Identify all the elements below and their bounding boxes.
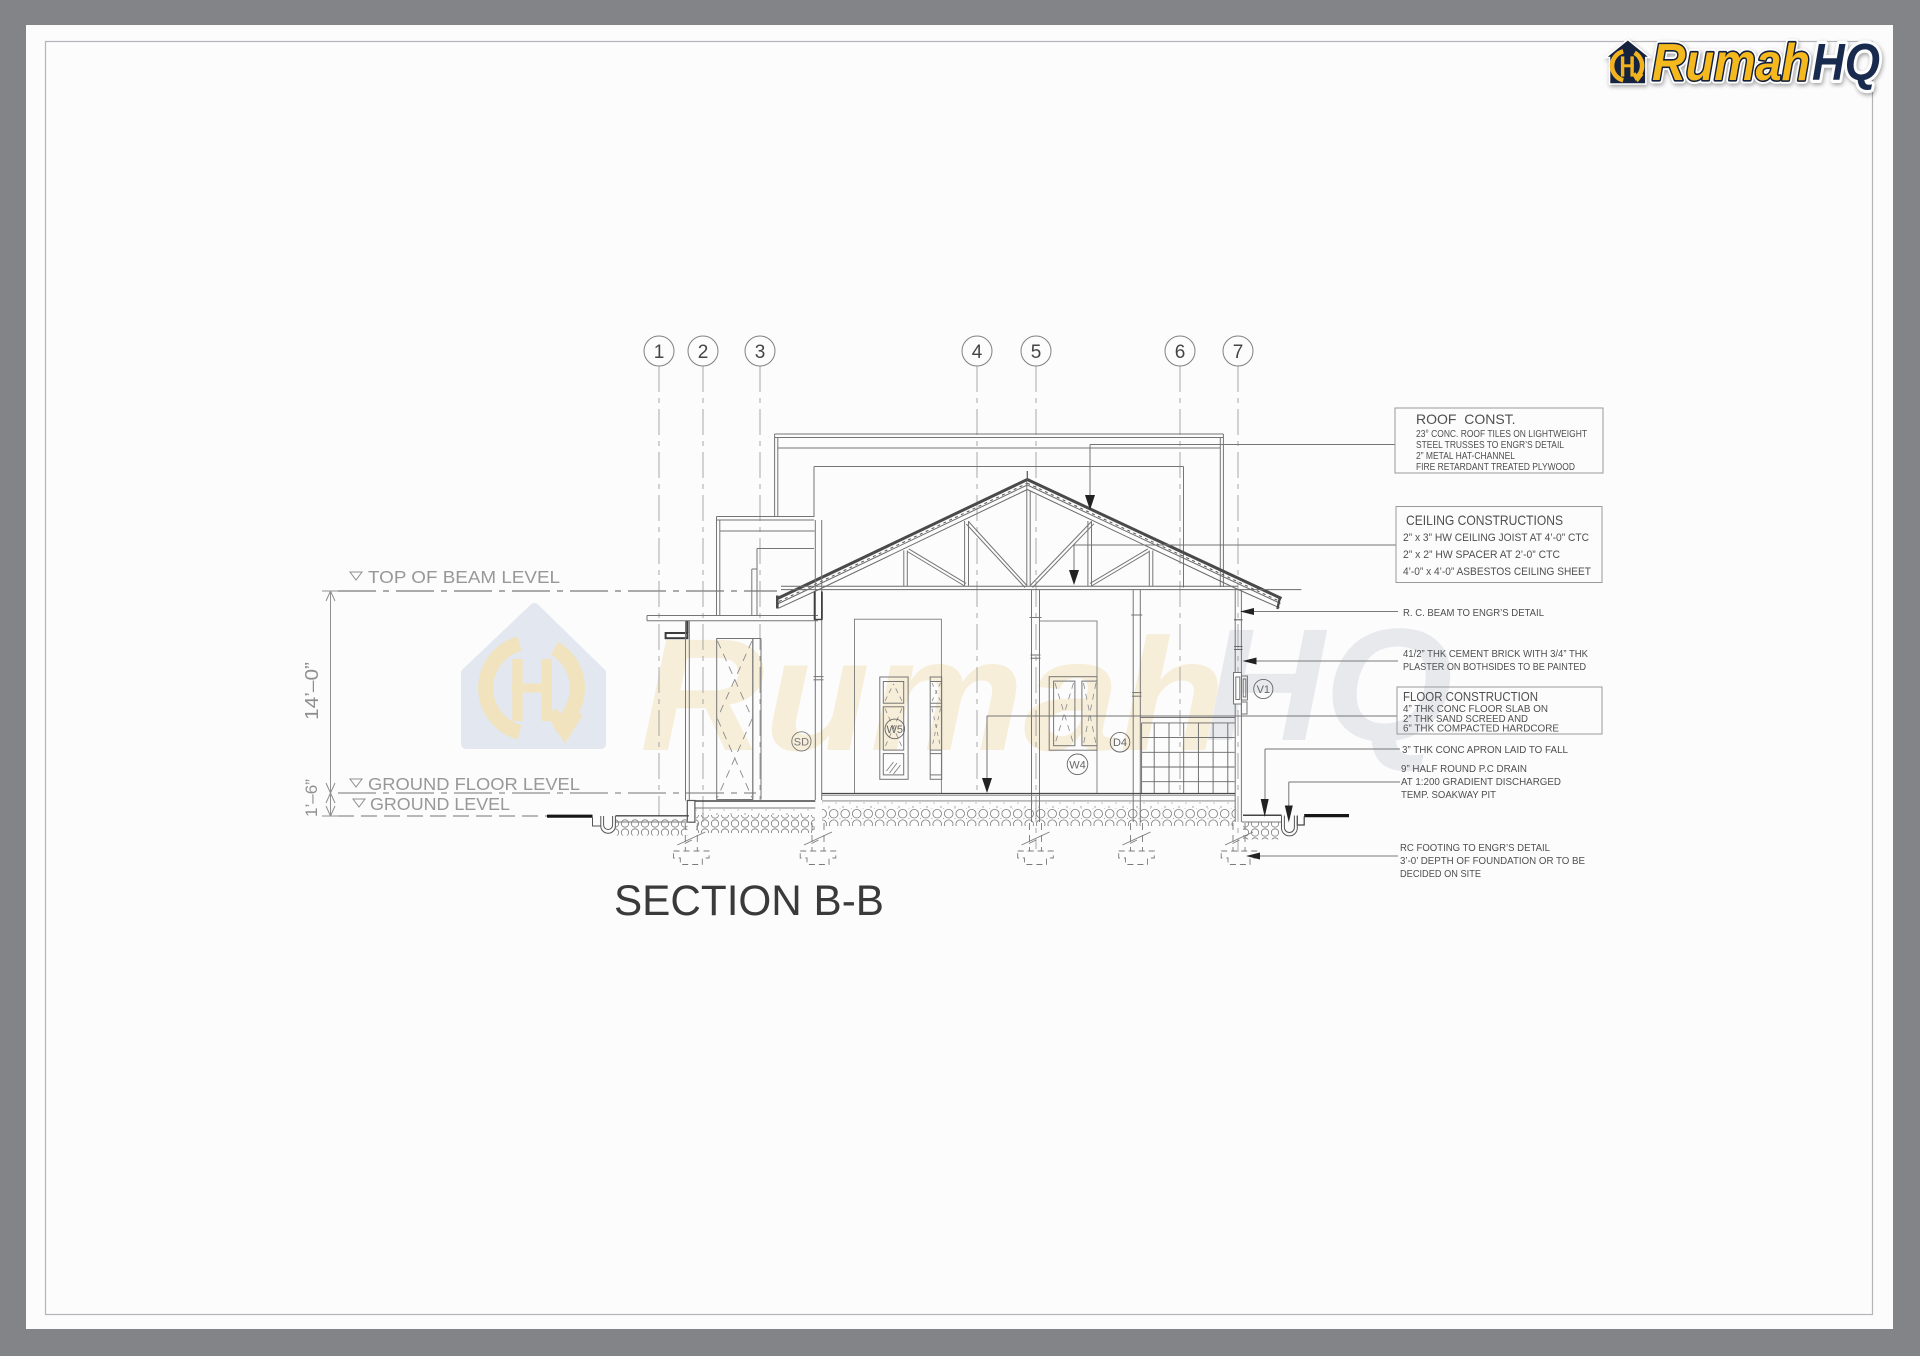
svg-text:3” THK CONC APRON LAID TO FALL: 3” THK CONC APRON LAID TO FALL — [1402, 744, 1568, 756]
svg-text:1: 1 — [654, 342, 665, 363]
svg-text:4: 4 — [972, 342, 983, 363]
svg-text:PLASTER ON BOTHSIDES TO BE PAI: PLASTER ON BOTHSIDES TO BE PAINTED — [1403, 661, 1586, 673]
svg-text:FLOOR CONSTRUCTION: FLOOR CONSTRUCTION — [1403, 690, 1538, 704]
svg-text:2” METAL HAT-CHANNEL: 2” METAL HAT-CHANNEL — [1416, 451, 1516, 462]
svg-text:ROOF CONST.: ROOF CONST. — [1416, 411, 1516, 427]
svg-text:SECTION B-B: SECTION B-B — [614, 877, 884, 925]
svg-text:AT 1:200 GRADIENT DISCHARGED: AT 1:200 GRADIENT DISCHARGED — [1401, 776, 1561, 788]
svg-text:14’–0”: 14’–0” — [302, 662, 322, 720]
svg-text:41/2” THK CEMENT BRICK WITH 3/: 41/2” THK CEMENT BRICK WITH 3/4” THK — [1403, 648, 1588, 660]
svg-text:W5: W5 — [887, 724, 904, 736]
svg-text:23° CONC. ROOF TILES ON LIGHTW: 23° CONC. ROOF TILES ON LIGHTWEIGHT — [1416, 429, 1587, 440]
svg-text:TEMP. SOAKWAY PIT: TEMP. SOAKWAY PIT — [1401, 789, 1497, 801]
svg-text:1’–6”: 1’–6” — [302, 779, 321, 817]
svg-text:7: 7 — [1233, 342, 1244, 363]
svg-text:CEILING CONSTRUCTIONS: CEILING CONSTRUCTIONS — [1406, 512, 1563, 528]
svg-text:3: 3 — [755, 342, 766, 363]
svg-text:R. C. BEAM TO ENGR’S DETAIL: R. C. BEAM TO ENGR’S DETAIL — [1403, 607, 1544, 619]
svg-text:2” x 2” HW SPACER AT 2’-0” CT: 2” x 2” HW SPACER AT 2’-0” CTC — [1403, 549, 1560, 561]
svg-text:GROUND FLOOR LEVEL: GROUND FLOOR LEVEL — [368, 774, 580, 794]
svg-text:W4: W4 — [1069, 760, 1086, 772]
svg-text:STEEL TRUSSES TO ENGR’S DETAIL: STEEL TRUSSES TO ENGR’S DETAIL — [1416, 440, 1565, 451]
svg-text:5: 5 — [1031, 342, 1042, 363]
svg-text:4’-0” x 4’-0” ASBESTOS CEILING: 4’-0” x 4’-0” ASBESTOS CEILING SHEET — [1403, 566, 1591, 578]
svg-text:6: 6 — [1175, 342, 1186, 363]
svg-text:FIRE RETARDANT TREATED PLYWOOD: FIRE RETARDANT TREATED PLYWOOD — [1416, 462, 1575, 473]
svg-text:3’-0’ DEPTH OF FOUNDATION OR T: 3’-0’ DEPTH OF FOUNDATION OR TO BE — [1400, 855, 1585, 867]
svg-text:DECIDED ON SITE: DECIDED ON SITE — [1400, 868, 1481, 880]
svg-text:2” x 3” HW CEILING JOIST AT 4’: 2” x 3” HW CEILING JOIST AT 4’-0” CTC — [1403, 532, 1589, 544]
svg-text:D4: D4 — [1113, 737, 1127, 749]
svg-text:9” HALF ROUND P.C DRAIN: 9” HALF ROUND P.C DRAIN — [1401, 763, 1527, 775]
svg-text:RC FOOTING TO ENGR’S DETAIL: RC FOOTING TO ENGR’S DETAIL — [1400, 842, 1550, 854]
svg-text:TOP OF BEAM LEVEL: TOP OF BEAM LEVEL — [368, 567, 560, 587]
svg-text:6” THK COMPACTED HARDCORE: 6” THK COMPACTED HARDCORE — [1403, 724, 1560, 735]
svg-text:Rumah: Rumah — [1652, 34, 1810, 92]
svg-text:GROUND LEVEL: GROUND LEVEL — [370, 794, 510, 814]
svg-text:HQ: HQ — [1812, 34, 1880, 92]
svg-text:SD: SD — [794, 736, 809, 748]
svg-text:V1: V1 — [1257, 684, 1270, 696]
svg-text:2: 2 — [698, 342, 709, 363]
